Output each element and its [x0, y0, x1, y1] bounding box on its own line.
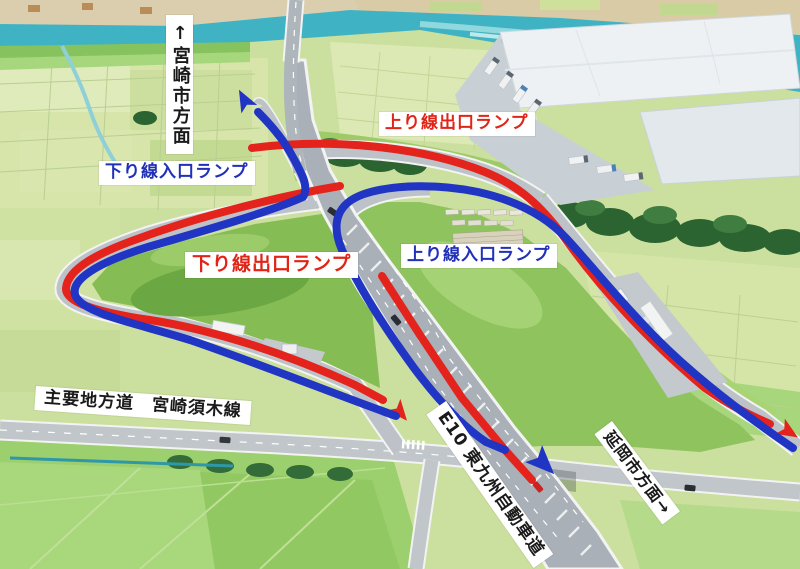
label-down-line-entrance-ramp: 下り線入口ランプ — [99, 161, 255, 185]
label-up-line-exit-ramp: 上り線出口ランプ — [379, 112, 535, 136]
interchange-illustration: ↑宮崎市方面 上り線出口ランプ 下り線入口ランプ 下り線出口ランプ 上り線入口ラ… — [0, 0, 800, 569]
interchange-artwork — [0, 0, 800, 569]
label-down-line-exit-ramp: 下り線出口ランプ — [185, 252, 358, 278]
warehouse-roof-2 — [640, 98, 800, 184]
label-miyazaki-direction: ↑宮崎市方面 — [166, 15, 193, 154]
label-up-line-entrance-ramp: 上り線入口ランプ — [401, 244, 557, 268]
